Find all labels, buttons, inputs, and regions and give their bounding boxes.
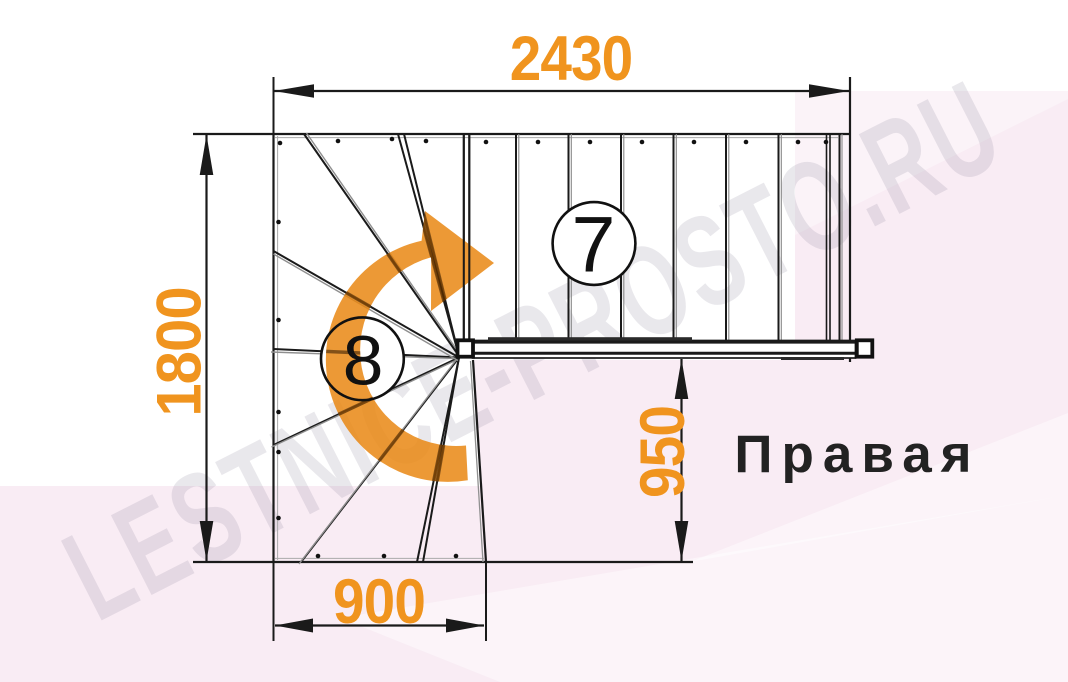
svg-text:Правая: Правая [734,425,980,484]
svg-text:1800: 1800 [144,287,215,416]
svg-text:950: 950 [627,406,697,498]
svg-text:900: 900 [333,566,425,636]
svg-text:8: 8 [343,322,384,400]
svg-text:2430: 2430 [510,23,633,93]
svg-text:7: 7 [572,200,616,289]
